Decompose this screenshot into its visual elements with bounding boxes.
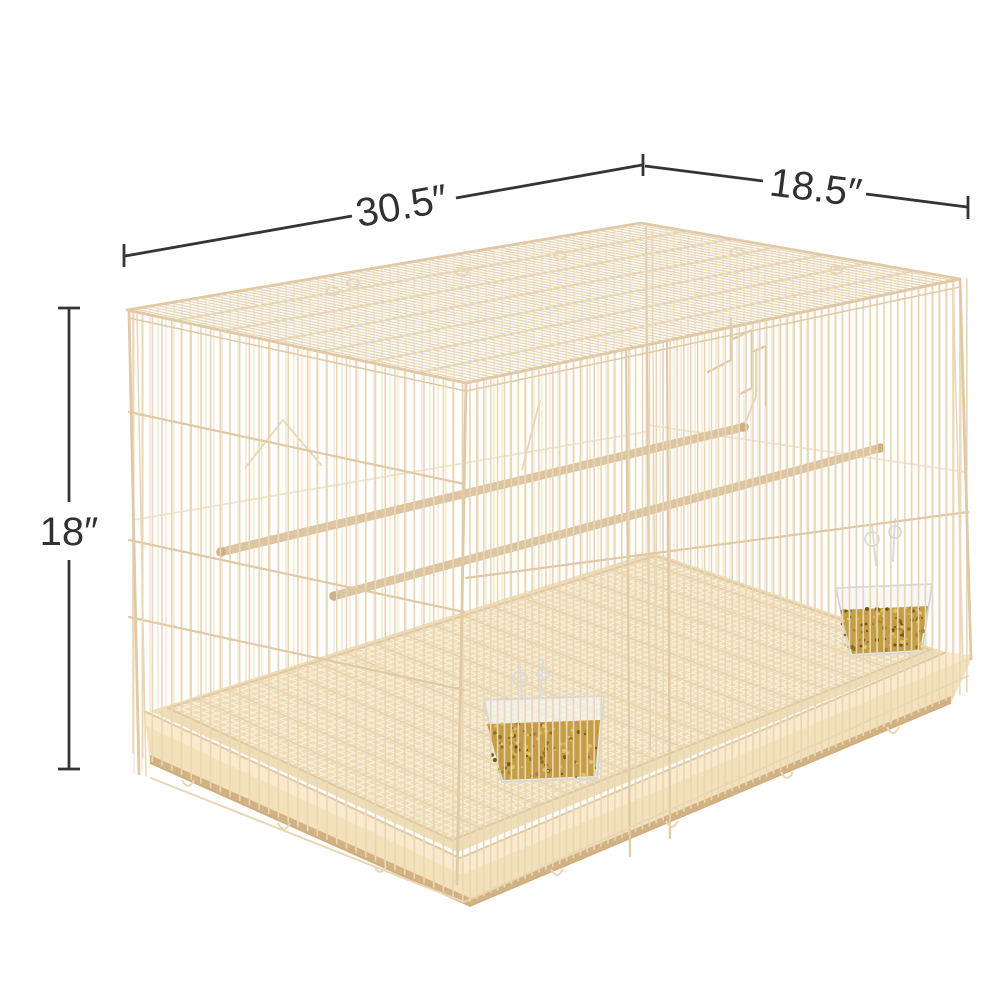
svg-text:30.5″: 30.5″ — [353, 177, 451, 236]
svg-text:18.5″: 18.5″ — [767, 161, 864, 216]
svg-text:18″: 18″ — [40, 510, 99, 554]
